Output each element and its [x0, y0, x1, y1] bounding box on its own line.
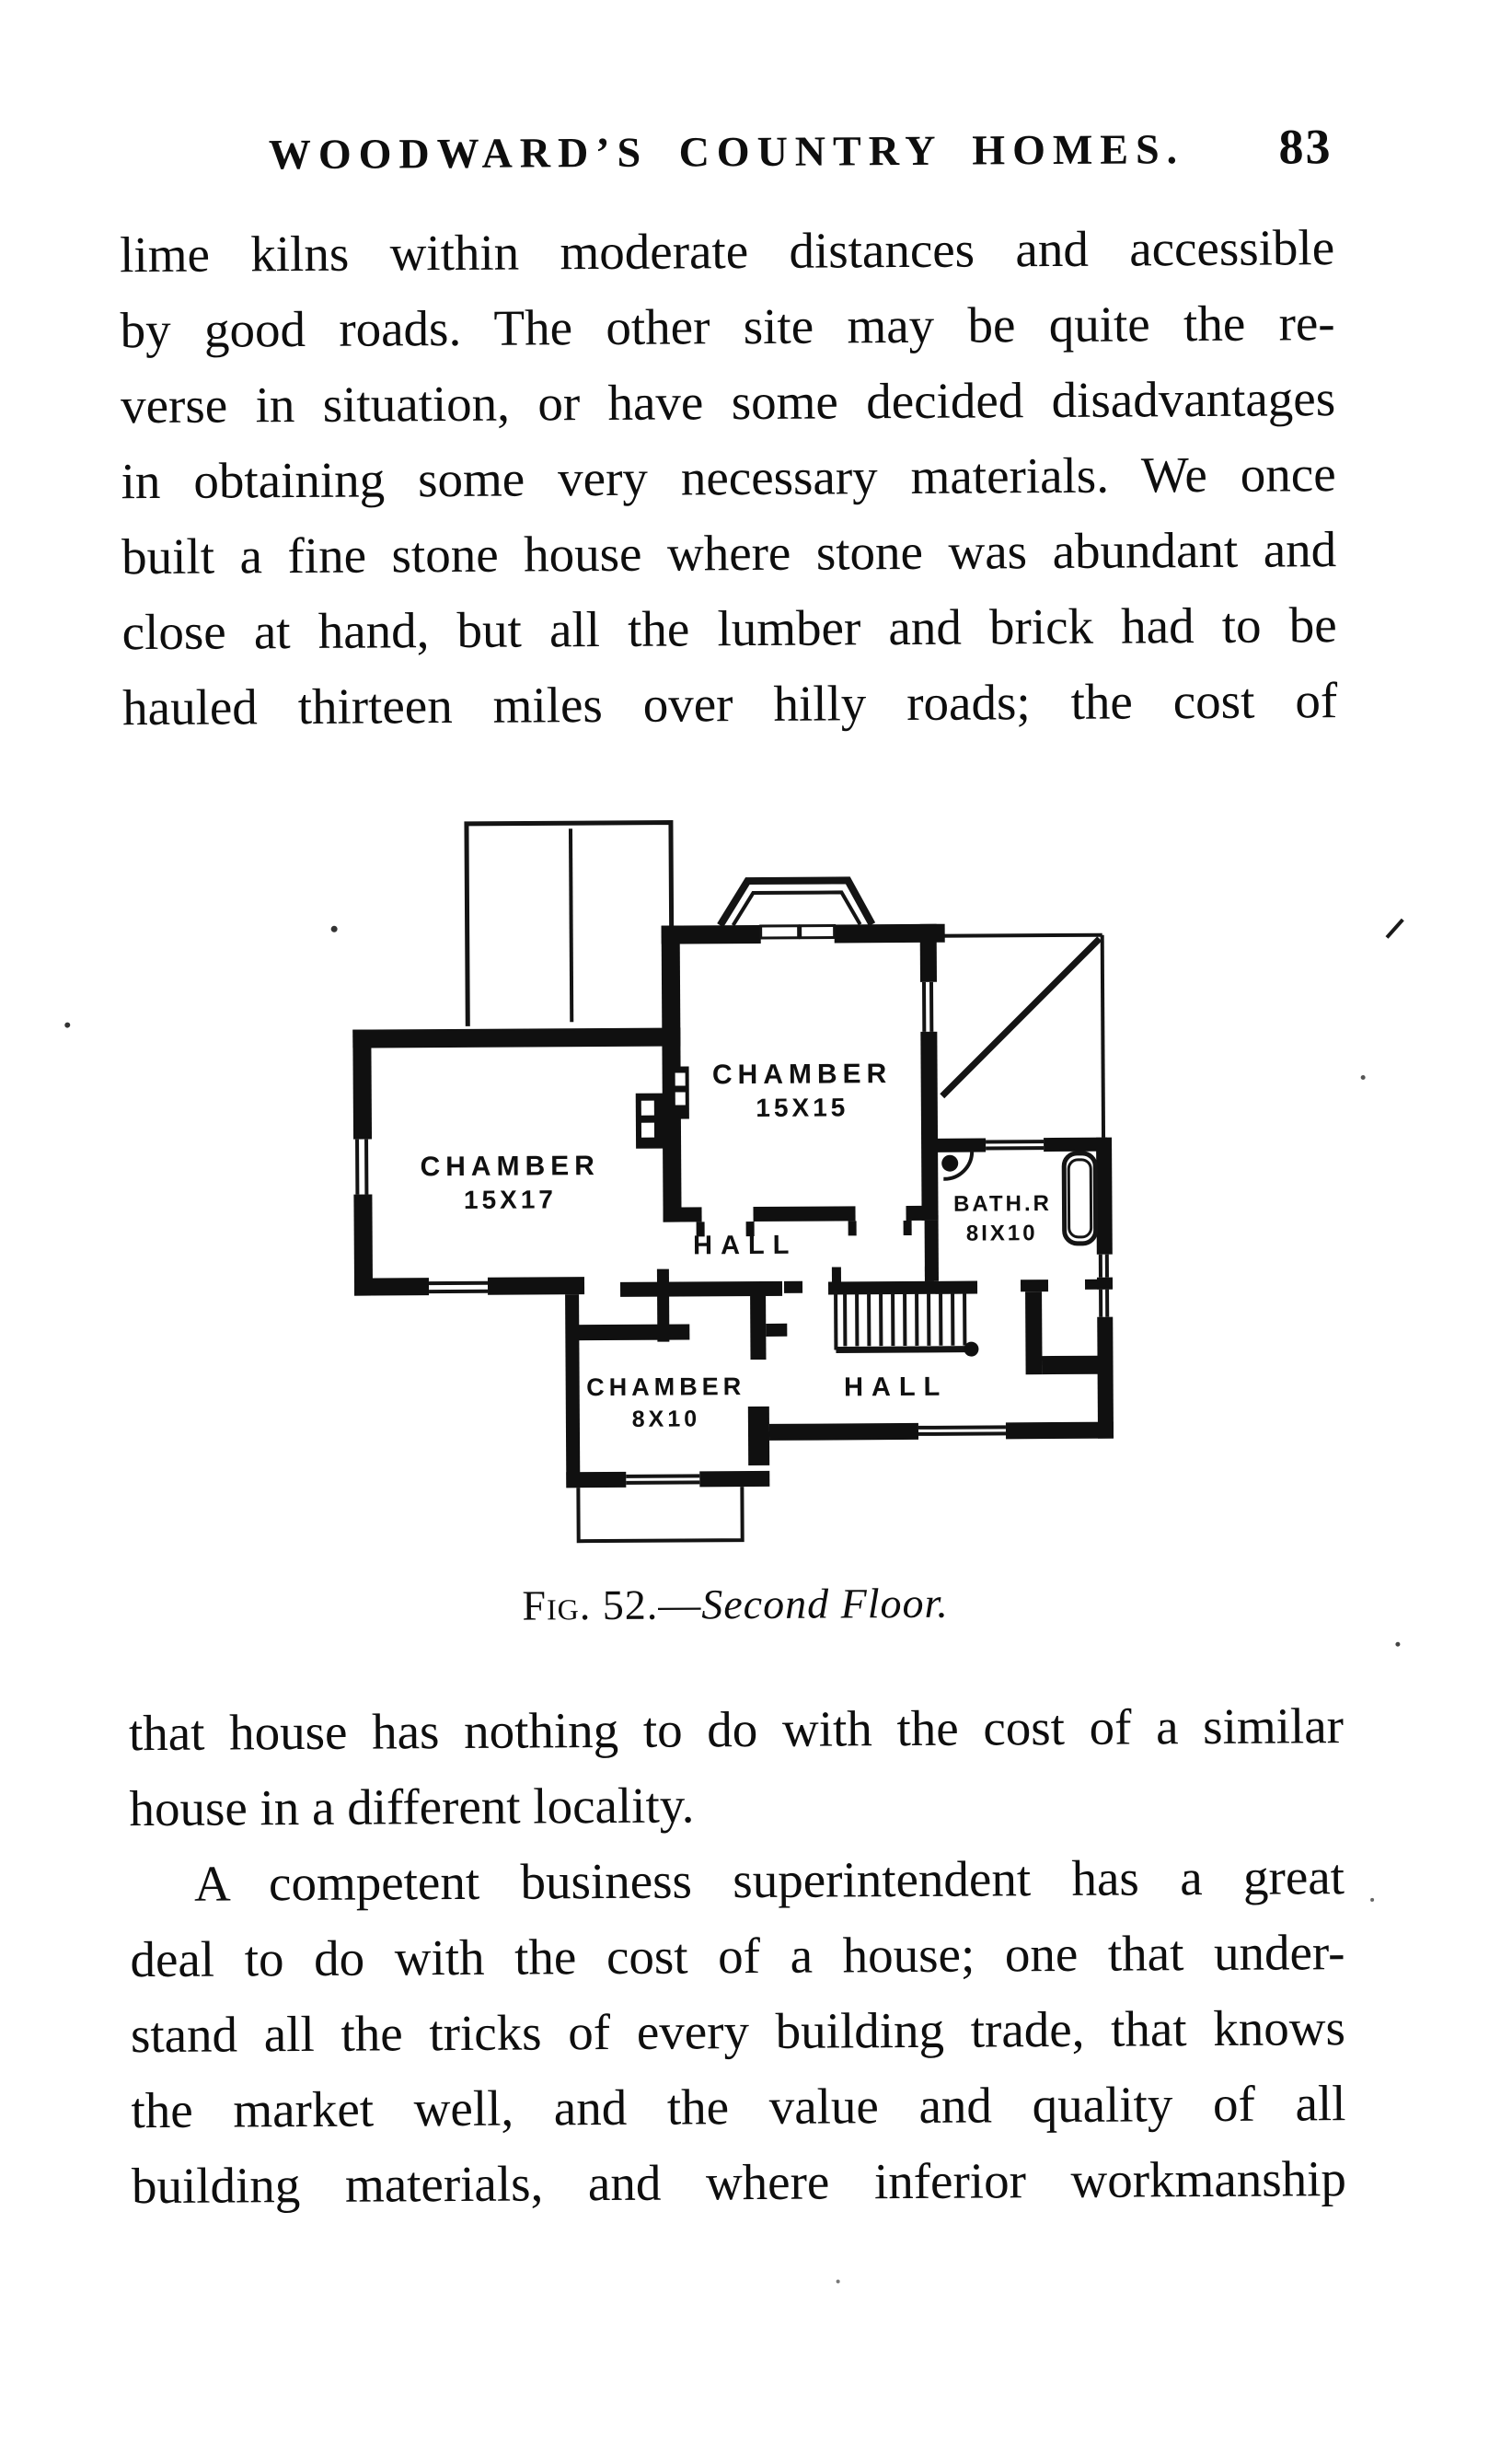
stairs — [836, 1291, 978, 1358]
scan-mark — [1386, 919, 1404, 939]
text-line: verse in situation, or have some decided… — [121, 361, 1335, 444]
text-line: in obtaining some very necessary materia… — [121, 436, 1335, 519]
caption-label: Fig. 52. — [522, 1581, 658, 1629]
text-line: built a fine stone house where stone was… — [121, 512, 1336, 595]
scan-speck — [1361, 1075, 1366, 1080]
text-line: lime kilns within moderate distances and… — [120, 210, 1334, 293]
room-label-bathroom: BATH.R — [953, 1191, 1052, 1217]
porch-outline — [578, 1487, 742, 1541]
room-label-chamber-15x15: CHAMBER — [712, 1059, 893, 1090]
newel-post — [964, 1342, 978, 1357]
scan-speck — [1395, 1642, 1400, 1647]
bathtub — [1064, 1153, 1096, 1244]
page-title: WOODWARD’S COUNTRY HOMES. — [119, 123, 1333, 179]
scan-speck — [331, 926, 338, 932]
scanned-sheet: WOODWARD’S COUNTRY HOMES. 83 lime kilns … — [0, 0, 1512, 2455]
caption-dash: — — [658, 1581, 701, 1627]
room-size-chamber-15x15: 15X15 — [756, 1093, 848, 1122]
scan-speck — [1370, 1898, 1374, 1902]
book-page: WOODWARD’S COUNTRY HOMES. 83 lime kilns … — [0, 0, 1512, 2455]
text-line: A competent business superintendent has … — [130, 1839, 1345, 1922]
paragraph-bottom: that house has nothing to do with the co… — [129, 1688, 1346, 2224]
running-header: WOODWARD’S COUNTRY HOMES. 83 — [119, 123, 1333, 195]
scan-speck — [837, 2279, 840, 2283]
floor-plan: CHAMBER 15X17 CHAMBER 15X15 HALL BATH.R … — [321, 785, 1119, 1556]
caption-title: Second Floor. — [701, 1580, 949, 1628]
room-label-hall-upper: HALL — [693, 1231, 798, 1261]
text-line: building materials, and where inferior w… — [132, 2141, 1346, 2224]
text-line: that house has nothing to do with the co… — [129, 1688, 1344, 1771]
room-size-chamber-8x10: 8X10 — [632, 1406, 701, 1431]
page-number: 83 — [1278, 118, 1332, 175]
figure-caption: Fig. 52.—Second Floor. — [128, 1576, 1343, 1632]
stair-railing — [836, 1349, 966, 1350]
text-line: close at hand, but all the lumber and br… — [121, 587, 1336, 670]
text-line: hauled thirteen miles over hilly roads; … — [122, 663, 1337, 746]
text-line: stand all the tricks of every building t… — [131, 1990, 1345, 2073]
roof-diagonal-region — [937, 935, 1103, 1139]
room-size-chamber-15x17: 15X17 — [464, 1185, 557, 1214]
room-size-bathroom: 8IX10 — [966, 1221, 1038, 1245]
room-label-chamber-15x17: CHAMBER — [420, 1151, 600, 1182]
scan-speck — [64, 1023, 70, 1028]
text-line: the market well, and the value and quali… — [131, 2066, 1345, 2148]
paragraph-top: lime kilns within moderate distances and… — [120, 210, 1337, 746]
room-label-hall-lower: HALL — [844, 1372, 949, 1403]
text-line: deal to do with the cost of a house; one… — [130, 1915, 1345, 1998]
door-swing — [941, 1151, 972, 1179]
text-line: house in a different locality. — [129, 1764, 1344, 1847]
room-label-chamber-8x10: CHAMBER — [586, 1372, 745, 1401]
text-line: by good roads. The other site may be qui… — [120, 285, 1334, 368]
floor-plan-figure: CHAMBER 15X17 CHAMBER 15X15 HALL BATH.R … — [321, 785, 1119, 1556]
